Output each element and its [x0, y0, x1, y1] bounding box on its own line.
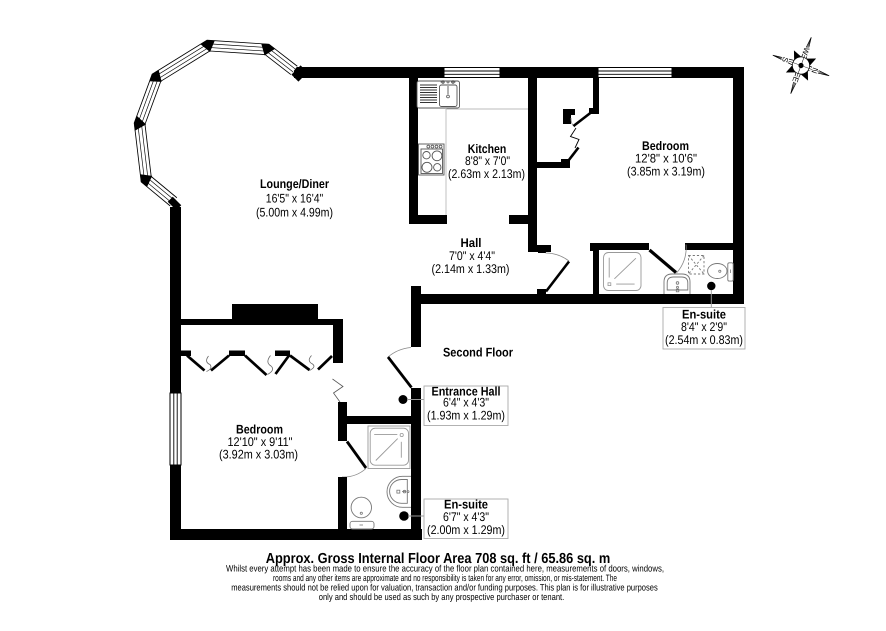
svg-text:N: N — [809, 66, 819, 74]
svg-text:16'5" x 16'4": 16'5" x 16'4" — [266, 192, 324, 206]
svg-text:12'10" x 9'11": 12'10" x 9'11" — [228, 435, 293, 449]
svg-text:(2.00m x 1.29m): (2.00m x 1.29m) — [427, 523, 505, 537]
svg-text:S: S — [780, 56, 790, 64]
svg-text:(2.63m x 2.13m): (2.63m x 2.13m) — [448, 167, 525, 181]
svg-text:8'4" x 2'9": 8'4" x 2'9" — [681, 320, 727, 334]
svg-text:(2.54m x 0.83m): (2.54m x 0.83m) — [665, 333, 743, 347]
svg-text:6'7" x 4'3": 6'7" x 4'3" — [443, 510, 489, 524]
svg-text:Whilst every attempt has been: Whilst every attempt has been made to en… — [226, 564, 664, 574]
svg-text:(3.85m x 3.19m): (3.85m x 3.19m) — [627, 165, 705, 179]
svg-text:(1.93m x 1.29m): (1.93m x 1.29m) — [427, 409, 505, 423]
svg-text:rooms and any other items are: rooms and any other items are approximat… — [273, 573, 617, 583]
svg-text:Lounge/Diner: Lounge/Diner — [260, 177, 329, 191]
svg-text:Hall: Hall — [461, 236, 482, 250]
svg-text:(2.14m x 1.33m): (2.14m x 1.33m) — [432, 262, 510, 276]
svg-text:measurements should not be rel: measurements should not be relied upon f… — [231, 583, 658, 593]
svg-text:12'8" x 10'6": 12'8" x 10'6" — [635, 152, 697, 166]
svg-text:Second Floor: Second Floor — [443, 345, 513, 359]
svg-text:(5.00m x 4.99m): (5.00m x 4.99m) — [256, 205, 333, 219]
svg-text:only and should be used as suc: only and should be used as such by any p… — [319, 592, 565, 602]
svg-text:(3.92m x 3.03m): (3.92m x 3.03m) — [219, 448, 298, 462]
svg-text:6'4" x 4'3": 6'4" x 4'3" — [443, 395, 489, 409]
